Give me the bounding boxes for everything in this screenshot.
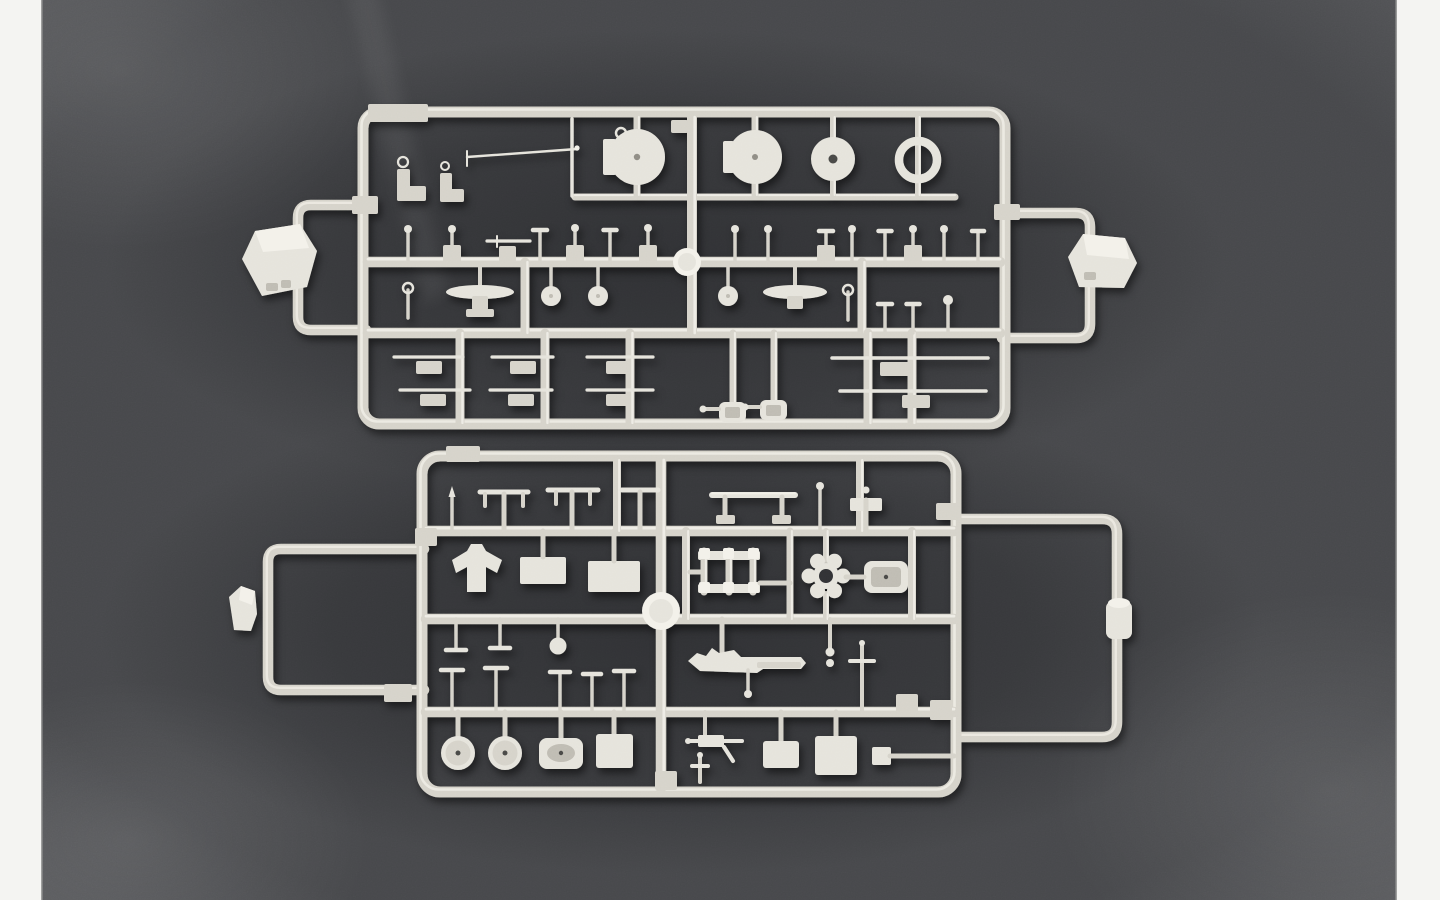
white-margin-right-edge [1396, 0, 1398, 900]
photo-grain-overlay [0, 0, 1440, 900]
white-margin-right [1397, 0, 1440, 900]
sprue-photo [0, 0, 1440, 900]
photo-stage [0, 0, 1440, 900]
white-margin-left [0, 0, 41, 900]
white-margin-left-edge [41, 0, 43, 900]
